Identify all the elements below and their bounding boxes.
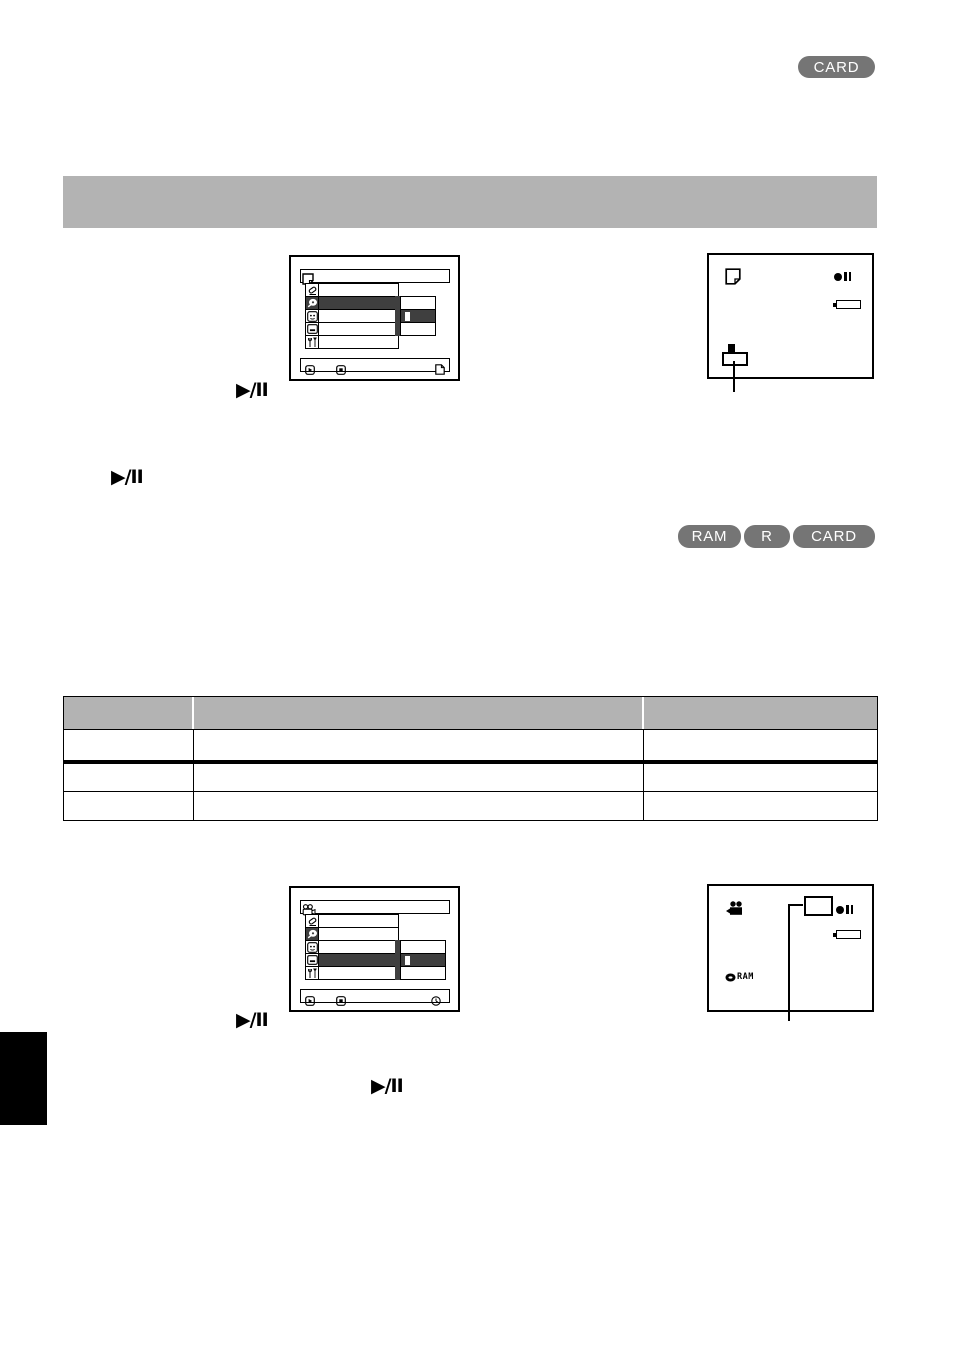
menu-row <box>318 927 399 941</box>
play-pause-symbol: ▶/II <box>236 1010 268 1030</box>
menu-value-box <box>400 940 446 954</box>
date-setup-icon <box>305 940 319 954</box>
r-media-badge-label: R <box>761 528 773 545</box>
table-cell <box>64 730 194 760</box>
page-quit-icon <box>435 360 445 379</box>
table-header-row <box>64 697 877 729</box>
menu-value-box-selected <box>400 953 446 967</box>
play-button-icon <box>305 991 315 1010</box>
display-setup-icon <box>305 322 319 336</box>
card-mode-badge: CARD <box>798 56 875 78</box>
table-cell <box>194 730 644 760</box>
menu-screen-movie <box>289 886 460 1012</box>
menu-row <box>318 322 399 336</box>
menu-screen-card <box>289 255 460 381</box>
menu-row <box>318 940 399 954</box>
callout-leader-line <box>788 904 790 1021</box>
menu-row <box>318 335 399 349</box>
settings-table <box>63 696 878 821</box>
battery-icon <box>833 930 861 939</box>
disc-record-icon <box>305 927 319 941</box>
menu-row <box>318 309 399 323</box>
table-cell <box>64 764 194 791</box>
card-media-badge-label: CARD <box>811 528 857 545</box>
table-cell <box>194 764 644 791</box>
menu-row-selected <box>318 953 401 967</box>
clock-icon <box>431 991 441 1010</box>
menu-cursor <box>405 956 410 965</box>
callout-leader-line <box>788 904 803 906</box>
disc-record-icon <box>305 296 319 310</box>
wipe-fade-icon <box>305 283 319 297</box>
movie-camera-icon <box>725 901 746 920</box>
disc-ram-icon: RAM <box>725 972 754 982</box>
menu-row <box>318 283 399 297</box>
stop-button-icon <box>336 991 346 1010</box>
card-mode-badge-label: CARD <box>814 59 860 76</box>
section-header-bar <box>63 176 877 228</box>
menu-row <box>318 914 399 928</box>
menu-value-box <box>400 296 436 310</box>
display-setup-icon <box>305 953 319 967</box>
menu-title-bar <box>300 900 450 914</box>
table-cell <box>194 792 644 820</box>
battery-icon <box>833 300 861 309</box>
table-cell <box>644 764 877 791</box>
initial-setup-icon <box>305 966 319 980</box>
table-row <box>64 729 877 760</box>
table-row <box>64 791 877 820</box>
callout-leader-line <box>733 361 735 392</box>
initial-setup-icon <box>305 335 319 349</box>
ram-media-badge: RAM <box>678 525 741 548</box>
highlighted-selection-box <box>804 896 833 916</box>
record-pause-icon <box>834 272 851 281</box>
table-cell <box>644 730 877 760</box>
menu-row-selected <box>318 296 401 310</box>
card-page-icon <box>725 268 741 289</box>
highlighted-selection-box <box>722 352 748 366</box>
menu-cursor <box>405 312 410 321</box>
menu-footer-bar <box>300 358 450 372</box>
menu-row <box>318 966 399 980</box>
table-header-cell <box>644 697 877 729</box>
manual-page: CARD <box>0 0 954 1352</box>
play-button-icon <box>305 360 315 379</box>
play-pause-symbol: ▶/II <box>371 1076 403 1096</box>
table-header-cell <box>64 697 194 729</box>
card-media-badge: CARD <box>793 525 875 548</box>
ram-indicator-label: RAM <box>737 972 754 982</box>
stop-button-icon <box>336 360 346 379</box>
menu-value-box <box>400 966 446 980</box>
table-row <box>64 764 877 791</box>
menu-title-bar <box>300 269 450 283</box>
r-media-badge: R <box>744 525 790 548</box>
menu-value-box-selected <box>400 309 436 323</box>
play-pause-symbol: ▶/II <box>236 380 268 400</box>
table-header-cell <box>194 697 644 729</box>
page-edge-tab <box>0 1032 47 1125</box>
ram-media-badge-label: RAM <box>692 528 728 545</box>
play-pause-symbol: ▶/II <box>111 467 143 487</box>
table-cell <box>64 792 194 820</box>
record-pause-icon <box>836 905 853 914</box>
table-cell <box>644 792 877 820</box>
wipe-fade-icon <box>305 914 319 928</box>
menu-value-box <box>400 322 436 336</box>
menu-footer-bar <box>300 989 450 1003</box>
date-setup-icon <box>305 309 319 323</box>
